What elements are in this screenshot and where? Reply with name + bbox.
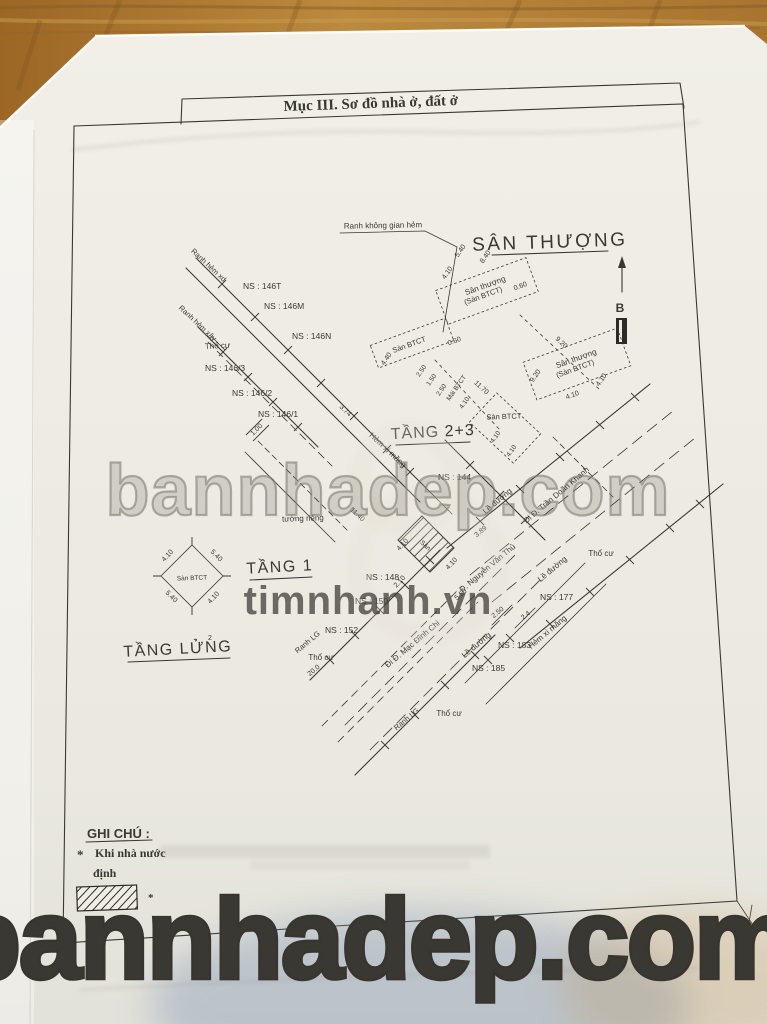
- notes-star: *: [77, 847, 84, 862]
- heading-tang-lung-sup: 2: [208, 635, 212, 642]
- label-san-btct-t23: Sàn BTCT: [486, 411, 522, 421]
- label-ns-152: NS : 152: [325, 625, 358, 635]
- label-ranh-khong-gian-hem: Ranh không gian hẻm: [344, 220, 423, 230]
- label-tho-cu-2: Thổ cư: [588, 549, 614, 558]
- watermark-big: bannhadep.com: [0, 876, 767, 1002]
- label-ns-146-2: NS : 146/2: [232, 388, 272, 398]
- label-ns-146t: NS : 146T: [243, 281, 281, 291]
- label-tho-cu-3: Thổ cư: [308, 653, 334, 662]
- label-ns-146-1: NS : 146/1: [258, 409, 298, 419]
- label-tho-cu-4: Thổ cư: [436, 709, 462, 718]
- label-ns-177: NS : 177: [540, 592, 573, 602]
- notes-heading: GHI CHÚ :: [87, 826, 150, 841]
- watermark-sub: timnhanh.vn: [244, 579, 493, 623]
- watermark-main: bannhadep.com: [105, 451, 670, 531]
- label-ns-146-3: NS : 146/3: [205, 363, 245, 373]
- label-ns-185: NS : 185: [472, 663, 505, 673]
- label-ns-183: NS : 183: [498, 640, 531, 650]
- label-ns-146m: NS : 146M: [264, 301, 304, 311]
- document-photo: Mục III. Sơ đồ nhà ở, đất ở Ranh không g…: [0, 0, 767, 1024]
- north-label: B: [616, 301, 625, 315]
- notes-line1: Khi nhà nước: [95, 846, 166, 860]
- label-san-btct-diamond: Sàn BTCT: [177, 574, 208, 582]
- label-tho-cu-1: Thổ cư: [205, 341, 231, 351]
- label-ns-146n: NS : 146N: [292, 331, 331, 341]
